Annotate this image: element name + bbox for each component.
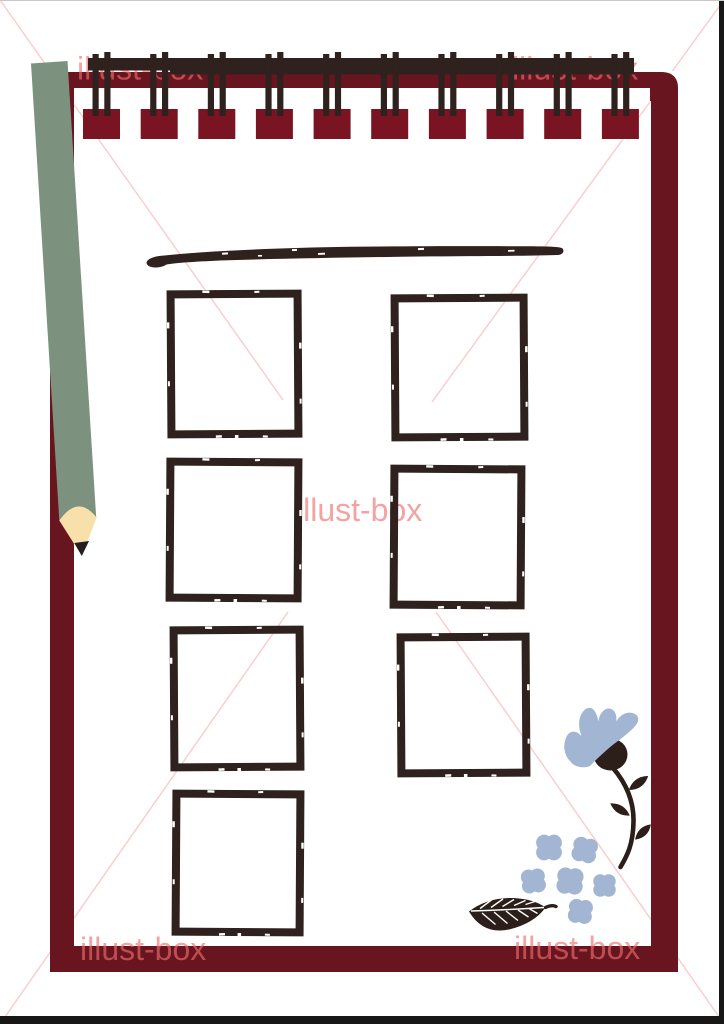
svg-text:illust-box: illust-box [80, 931, 206, 967]
svg-text:illust-box: illust-box [514, 930, 640, 966]
svg-text:illust-box: illust-box [296, 492, 422, 528]
